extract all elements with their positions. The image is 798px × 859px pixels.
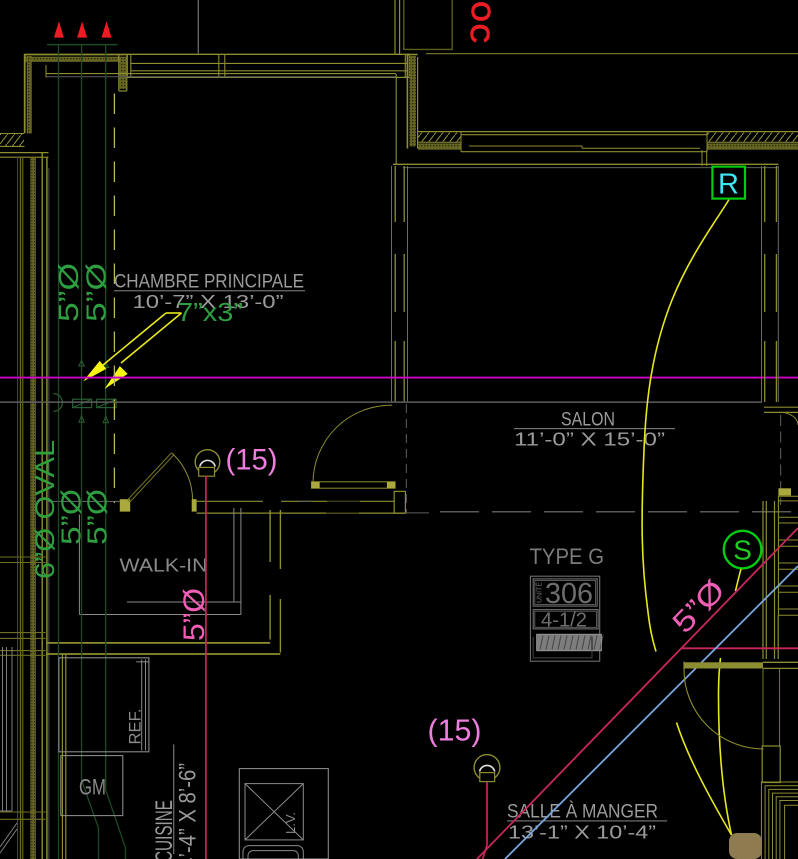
svg-text:GM: GM (79, 774, 106, 799)
svg-text:SALLE À MANGER: SALLE À MANGER (507, 799, 658, 822)
svg-text:TYPE G: TYPE G (530, 544, 605, 569)
svg-text:R: R (718, 168, 739, 200)
svg-text:WALK-IN: WALK-IN (120, 556, 208, 576)
svg-text:7”x3”: 7”x3” (177, 297, 243, 327)
svg-text:SALON: SALON (561, 409, 615, 430)
svg-text:(15): (15) (226, 444, 278, 477)
svg-text:14’-4” X 8’-6”: 14’-4” X 8’-6” (175, 763, 202, 859)
svg-text:CHAMBRE PRINCIPALE: CHAMBRE PRINCIPALE (114, 272, 304, 293)
svg-text:5”Ø: 5”Ø (178, 588, 211, 641)
svg-text:13’-1” X 10’-4”: 13’-1” X 10’-4” (508, 822, 656, 843)
svg-text:306: 306 (545, 578, 593, 610)
svg-text:UNITÉ: UNITÉ (535, 582, 544, 603)
svg-text:O: O (466, 1, 497, 22)
svg-text:REF.: REF. (127, 709, 145, 745)
svg-text:S: S (733, 535, 752, 566)
svg-text:6”Ø OVAL: 6”Ø OVAL (30, 440, 60, 579)
svg-text:(15): (15) (428, 713, 482, 748)
svg-text:5”Ø: 5”Ø (82, 489, 113, 545)
svg-text:C: C (465, 24, 496, 44)
svg-text:4-1/2: 4-1/2 (541, 610, 587, 632)
svg-text:5”Ø: 5”Ø (53, 263, 84, 322)
svg-text:L.V.: L.V. (283, 812, 298, 834)
svg-text:5”Ø: 5”Ø (81, 263, 112, 322)
svg-text:11’-0” X 15’-0”: 11’-0” X 15’-0” (514, 429, 665, 449)
